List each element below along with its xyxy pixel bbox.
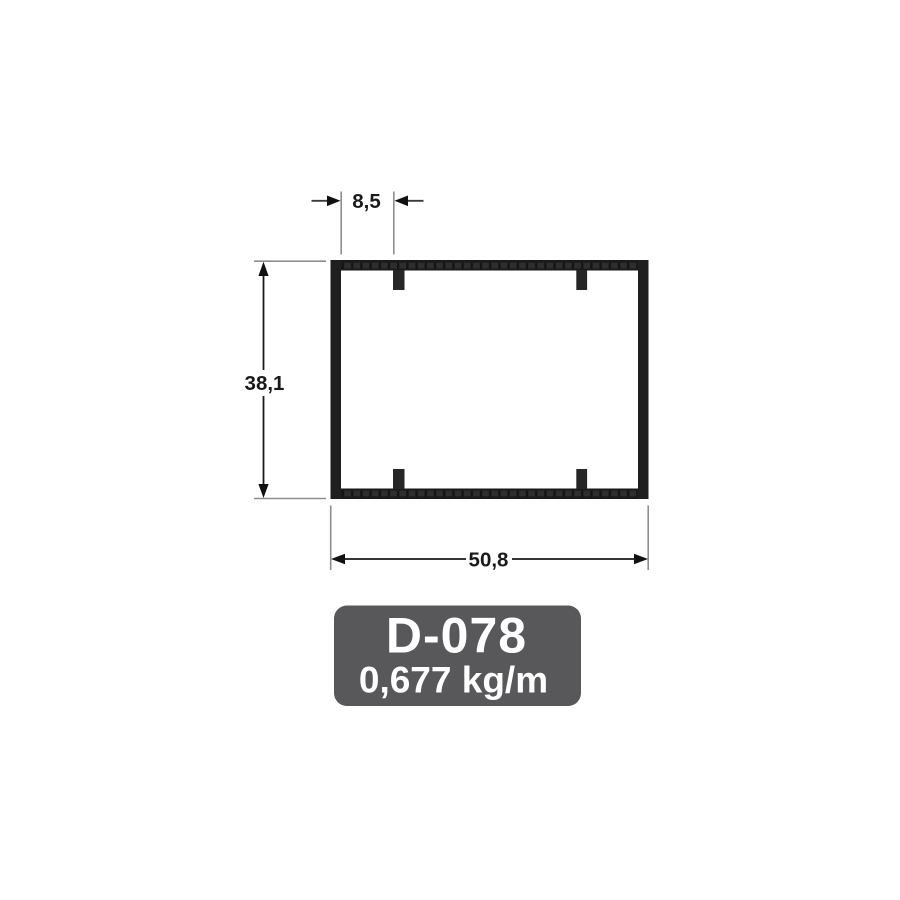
svg-text:50,8: 50,8 (469, 549, 509, 572)
svg-text:8,5: 8,5 (352, 190, 381, 213)
svg-text:D-078: D-078 (386, 608, 527, 664)
svg-text:0,677 kg/m: 0,677 kg/m (359, 660, 548, 701)
svg-text:38,1: 38,1 (245, 372, 285, 395)
